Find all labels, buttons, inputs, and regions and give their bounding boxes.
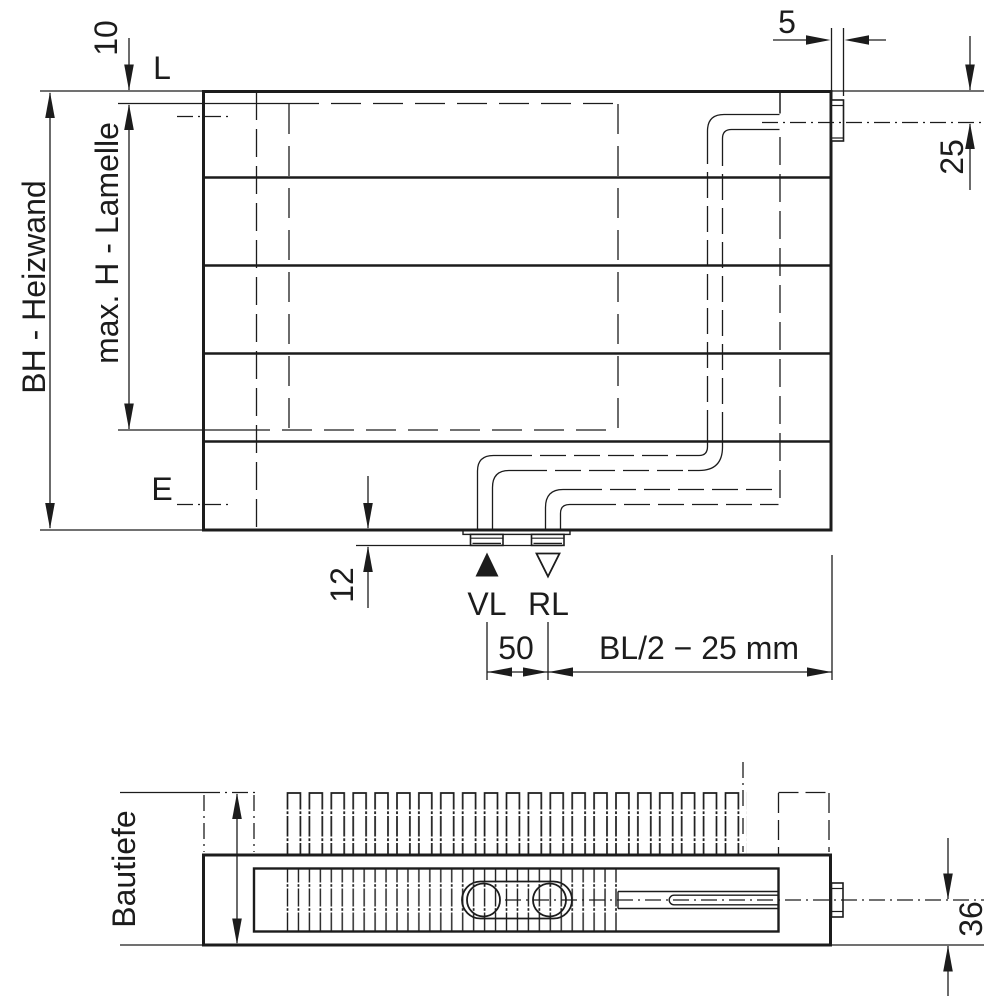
dim-max-h-lamelle (124, 104, 134, 430)
radiator-diagram-svg: L E BH - Heizwand max. H - Lamelle 10 5 … (0, 0, 1000, 1000)
radiator-body-front (118, 92, 984, 531)
side-connector-tab (832, 100, 844, 141)
radiator-body-bottom (204, 855, 985, 945)
bottom-view: Bautiefe 36 (106, 762, 989, 996)
dim-text-5: 5 (778, 4, 796, 40)
dim-10 (124, 38, 134, 91)
label-height-fins-max: max. H - Lamelle (89, 122, 125, 364)
dim-text-36: 36 (953, 901, 989, 937)
dim-text-12: 12 (324, 567, 360, 603)
dim-text-bl2: BL/2 − 25 mm (599, 630, 799, 666)
dim-text-25: 25 (934, 139, 970, 175)
label-return: RL (528, 586, 569, 622)
label-depth: Bautiefe (106, 810, 142, 927)
front-view: L E BH - Heizwand max. H - Lamelle 10 5 … (16, 4, 984, 680)
label-top-line: L (153, 50, 171, 86)
bottom-connections (463, 531, 570, 577)
supply-flow-arrow-icon (476, 553, 499, 577)
return-flow-arrow-icon (537, 554, 560, 577)
dim-text-50: 50 (498, 630, 534, 666)
radiator-technical-drawing: L E BH - Heizwand max. H - Lamelle 10 5 … (0, 0, 1000, 1000)
label-height-overall: BH - Heizwand (16, 180, 52, 393)
dim-text-10: 10 (88, 20, 124, 56)
label-embed-line: E (151, 471, 172, 507)
drawing-lines: L E BH - Heizwand max. H - Lamelle 10 5 … (16, 4, 989, 996)
convector-fins-top (287, 792, 747, 855)
label-supply: VL (467, 586, 506, 622)
